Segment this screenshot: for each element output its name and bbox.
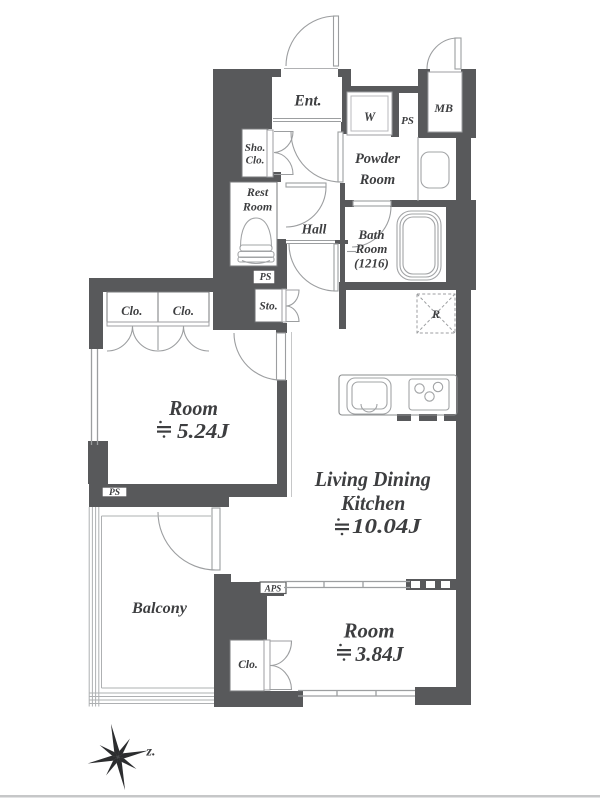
svg-text:APS: APS bbox=[264, 584, 282, 594]
svg-text:10.04J: 10.04J bbox=[352, 514, 423, 538]
svg-text:Room: Room bbox=[168, 396, 218, 420]
svg-text:Clo.: Clo. bbox=[246, 155, 265, 167]
svg-text:Balcony: Balcony bbox=[131, 600, 188, 617]
svg-text:R: R bbox=[431, 307, 440, 321]
svg-text:Hall: Hall bbox=[301, 222, 327, 237]
svg-text:3.84J: 3.84J bbox=[354, 642, 405, 666]
svg-text:Kitchen: Kitchen bbox=[340, 491, 405, 515]
svg-text:Sho.: Sho. bbox=[245, 142, 266, 154]
svg-text:PS: PS bbox=[260, 272, 272, 283]
svg-text:Clo.: Clo. bbox=[173, 304, 194, 318]
svg-text:5.24J: 5.24J bbox=[177, 419, 231, 443]
svg-text:PS: PS bbox=[109, 488, 120, 498]
svg-text:Room: Room bbox=[355, 241, 388, 256]
svg-text:(1216): (1216) bbox=[354, 256, 389, 271]
svg-text:Living Dining: Living Dining bbox=[314, 467, 431, 491]
svg-text:MB: MB bbox=[433, 101, 453, 115]
svg-text:Room: Room bbox=[343, 619, 395, 643]
svg-text:Sto.: Sto. bbox=[259, 301, 277, 313]
svg-text:PS: PS bbox=[401, 115, 414, 127]
svg-text:Clo.: Clo. bbox=[238, 659, 258, 671]
svg-text:Room: Room bbox=[242, 200, 272, 214]
svg-text:Room: Room bbox=[359, 172, 395, 188]
svg-text:Clo.: Clo. bbox=[121, 304, 142, 318]
svg-text:z.: z. bbox=[146, 745, 156, 760]
svg-text:Rest: Rest bbox=[246, 185, 269, 199]
svg-text:W: W bbox=[364, 110, 376, 124]
svg-text:Powder: Powder bbox=[355, 151, 400, 167]
svg-text:Bath: Bath bbox=[357, 227, 384, 242]
svg-text:Ent.: Ent. bbox=[293, 93, 321, 110]
